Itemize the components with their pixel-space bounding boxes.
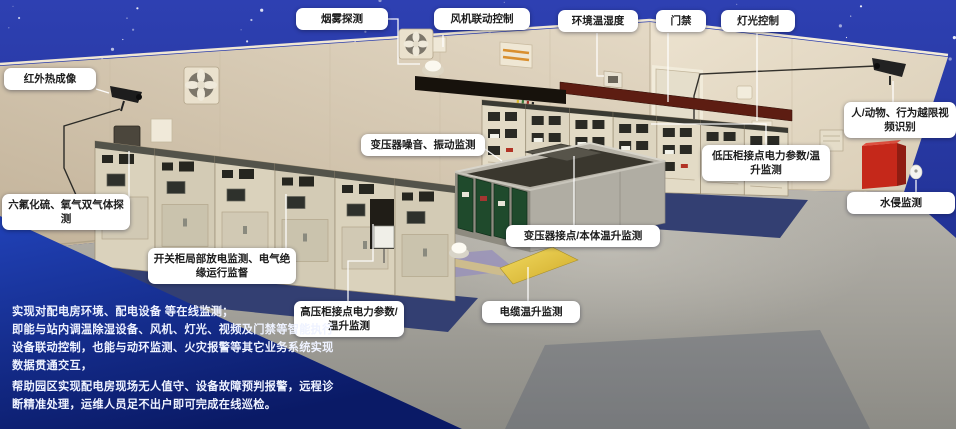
fan-switch	[433, 37, 446, 52]
callout-cable-temp-rise: 电缆温升监测	[482, 301, 580, 323]
callout-env-temp-humidity: 环境温湿度	[558, 10, 638, 32]
callout-smoke-detection: 烟雾探测	[296, 8, 388, 30]
description-line: 即能与站内调温除湿设备、风机、灯光、视频及门禁等智能执行	[12, 321, 352, 339]
wall-fan-icon	[399, 29, 433, 59]
description-text: 实现对配电房环境、配电设备 等在线监测； 即能与站内调温除湿设备、风机、灯光、视…	[12, 303, 352, 414]
power-distribution-room-monitoring-diagram: 烟雾探测 风机联动控制 环境温湿度 门禁 灯光控制 红外热成像 六氟化硫、氧气双…	[0, 0, 956, 429]
description-line: 设备联动控制，也能与动环监测、火灾报警等其它业务系统实现	[12, 339, 352, 357]
water-sensor-icon	[910, 165, 922, 179]
description-line: 实现对配电房环境、配电设备 等在线监测；	[12, 303, 352, 321]
wall-box	[151, 119, 172, 142]
description-line: 数据贯通交互，	[12, 357, 352, 375]
access-reader-icon	[737, 86, 752, 99]
callout-lighting-control: 灯光控制	[721, 10, 795, 32]
description-line: 断精准处理，运维人员足不出户即可完成在线巡检。	[12, 396, 352, 414]
fire-extinguisher-box	[862, 140, 906, 189]
wall-fan-icon	[184, 67, 219, 104]
callout-access-control: 门禁	[656, 10, 706, 32]
callout-fan-linkage-control: 风机联动控制	[434, 8, 530, 30]
callout-lv-cabinet-power-temp: 低压柜接点电力参数/温升监测	[702, 145, 830, 181]
floor-shade	[505, 330, 870, 429]
temp-humidity-device-icon	[500, 42, 532, 68]
callout-transformer-joint-body-temp: 变压器接点/本体温升监测	[506, 225, 660, 247]
thermo-sensor-icon	[604, 71, 622, 88]
callout-switchgear-pd-insulation: 开关柜局部放电监测、电气绝缘运行监督	[148, 248, 296, 284]
callout-video-recognition: 人/动物、行为越限视频识别	[844, 102, 956, 138]
callout-infrared-thermal: 红外热成像	[4, 68, 96, 90]
callout-transformer-noise-vibration: 变压器噪音、振动监测	[361, 134, 485, 156]
description-line: 帮助园区实现配电房现场无人值守、设备故障预判报警，远程诊	[12, 378, 352, 396]
callout-water-intrusion: 水侵监测	[847, 192, 955, 214]
callout-dual-gas-detection: 六氟化硫、氧气双气体探测	[2, 194, 130, 230]
